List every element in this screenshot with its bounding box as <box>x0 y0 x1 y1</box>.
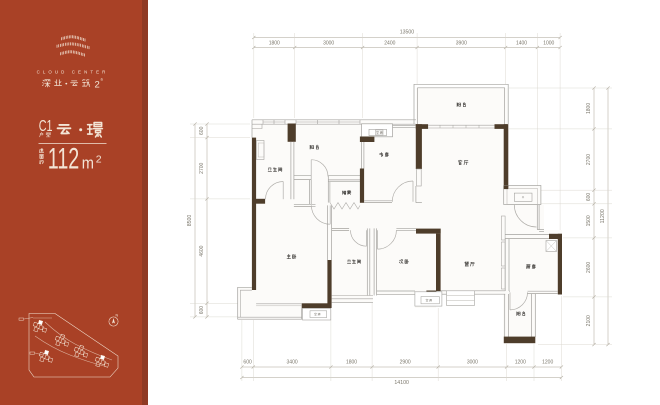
svg-text:600: 600 <box>199 126 205 135</box>
svg-text:1800: 1800 <box>346 360 357 366</box>
svg-text:3000: 3000 <box>467 360 478 366</box>
svg-text:1000: 1000 <box>543 40 554 46</box>
svg-text:2: 2 <box>96 154 102 166</box>
svg-text:CLOUD CENTER: CLOUD CENTER <box>37 69 109 74</box>
svg-text:2900: 2900 <box>400 360 411 366</box>
svg-text:2100: 2100 <box>586 315 592 326</box>
svg-text:600: 600 <box>586 193 592 202</box>
svg-text:8500: 8500 <box>187 215 193 227</box>
svg-text:112: 112 <box>48 142 80 175</box>
svg-text:N: N <box>115 314 118 318</box>
svg-text:3900: 3900 <box>456 40 467 46</box>
svg-text:1800: 1800 <box>269 40 280 46</box>
svg-text:2: 2 <box>95 79 100 90</box>
svg-text:1800: 1800 <box>586 103 592 114</box>
svg-text:600: 600 <box>243 360 252 366</box>
svg-text:13500: 13500 <box>400 30 415 36</box>
svg-text:4600: 4600 <box>199 245 205 256</box>
svg-text:3000: 3000 <box>323 40 334 46</box>
svg-text:1200: 1200 <box>515 360 526 366</box>
svg-text:14100: 14100 <box>394 380 409 386</box>
svg-text:1400: 1400 <box>516 40 527 46</box>
svg-text:m: m <box>82 154 94 172</box>
svg-text:1500: 1500 <box>586 215 592 226</box>
svg-text:2400: 2400 <box>384 40 395 46</box>
svg-text:1200: 1200 <box>542 360 553 366</box>
svg-text:®: ® <box>101 78 104 82</box>
svg-text:2700: 2700 <box>586 154 592 165</box>
svg-text:2600: 2600 <box>586 262 592 273</box>
svg-text:600: 600 <box>199 306 205 315</box>
svg-text:11200: 11200 <box>600 209 606 223</box>
svg-text:3400: 3400 <box>287 360 298 366</box>
svg-text:2700: 2700 <box>199 162 205 173</box>
